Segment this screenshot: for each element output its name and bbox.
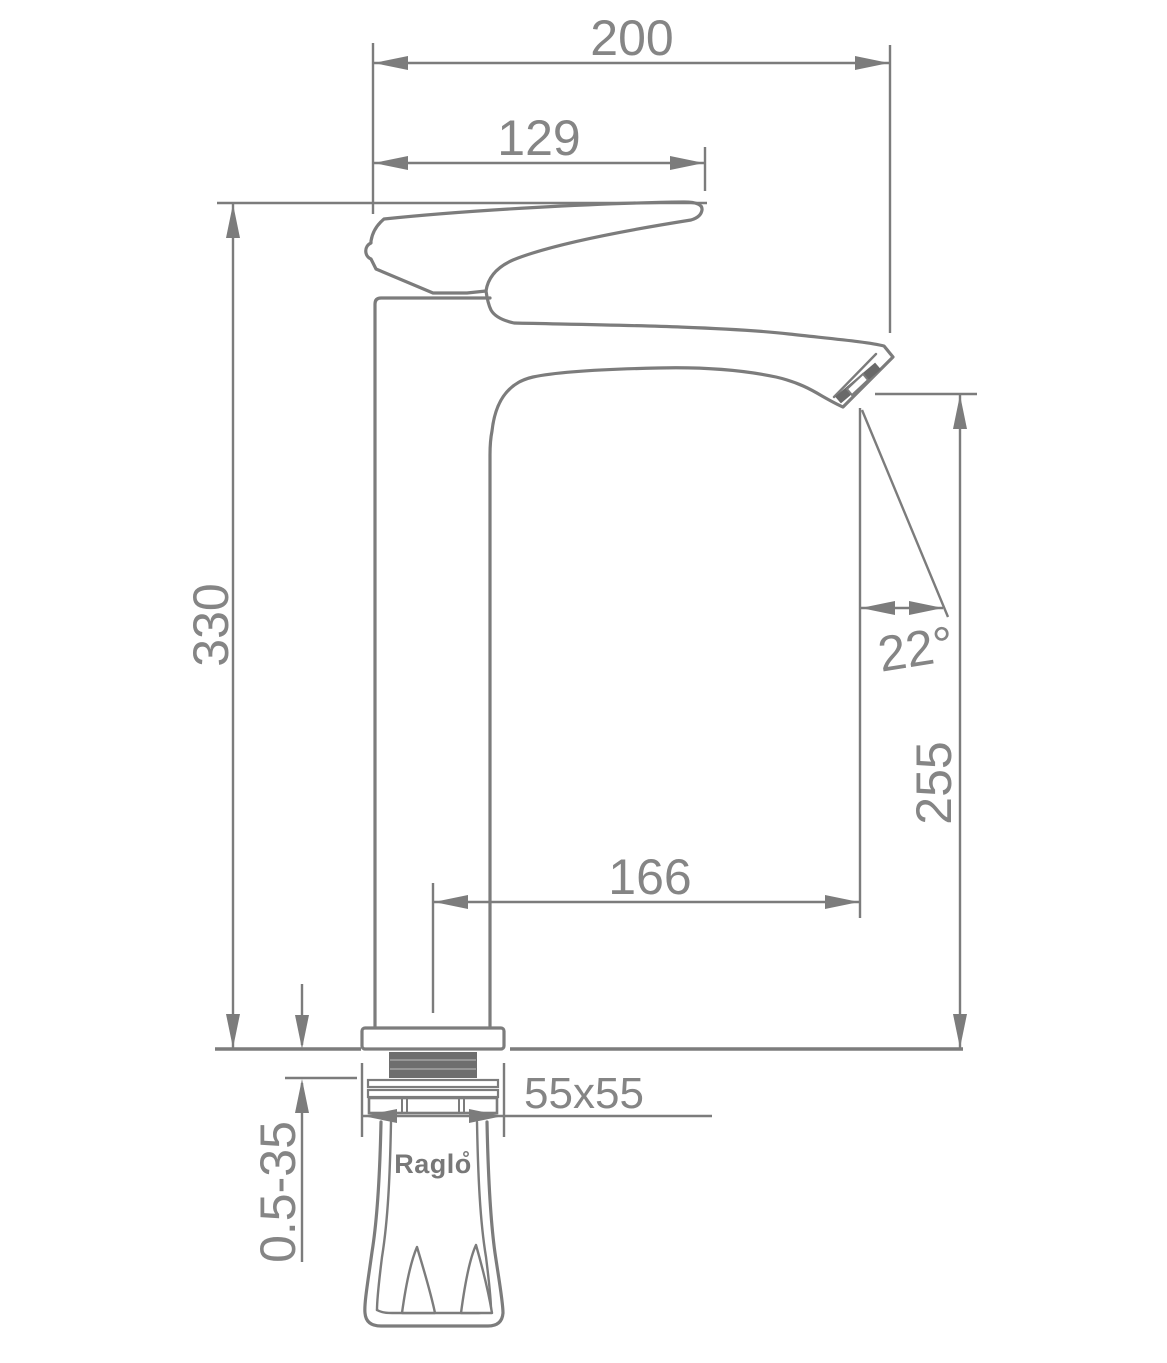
dim-label-255: 255: [906, 741, 962, 824]
mounting-nut: [369, 1098, 497, 1113]
arrowhead-down: [295, 1015, 309, 1049]
spout: [486, 291, 893, 1028]
handle-lever: [366, 202, 702, 293]
arrowhead-down: [953, 1014, 967, 1048]
mounting-flange: [362, 1028, 504, 1049]
supply-hose-left: [402, 1247, 435, 1313]
dim-label-200: 200: [590, 10, 673, 66]
dim-outlet-height-255: 255: [875, 394, 977, 1048]
arrowhead-right: [855, 56, 889, 70]
dim-label-clamp-range: 0.5-35: [250, 1121, 306, 1263]
arrowhead-left: [374, 156, 408, 170]
technical-drawing-page: Raglo 200 129 330 255: [0, 0, 1167, 1363]
threaded-shank: [389, 1052, 477, 1078]
faucet-assembly: Raglo: [362, 202, 893, 1326]
arrowhead-left: [861, 601, 895, 615]
supply-hose-right: [461, 1245, 492, 1313]
arrowhead-right: [825, 895, 859, 909]
arrowhead-left: [374, 56, 408, 70]
dim-label-129: 129: [497, 110, 580, 166]
arrowhead-up: [953, 395, 967, 429]
dim-spout-reach-166: 166: [433, 849, 859, 1013]
dim-spout-angle-22: 22°: [860, 408, 958, 918]
dim-handle-reach-129: 129: [374, 110, 705, 191]
arrowhead-right: [670, 156, 704, 170]
brand-logo: Raglo: [394, 1149, 472, 1179]
dim-label-55x55: 55x55: [524, 1069, 644, 1118]
arrowhead-down: [226, 1014, 240, 1048]
arrowhead-left: [434, 895, 468, 909]
dim-top-width-200: 200: [373, 10, 890, 333]
lock-washer-lower: [368, 1090, 498, 1097]
arrowhead-up: [226, 204, 240, 238]
dim-label-166: 166: [608, 849, 691, 905]
faucet-dimension-diagram: Raglo 200 129 330 255: [0, 0, 1167, 1363]
dim-overall-height-330: 330: [183, 203, 707, 1048]
lock-washer-upper: [368, 1080, 498, 1087]
dim-label-22deg: 22°: [874, 615, 957, 682]
arrowhead-right: [909, 601, 943, 615]
dim-label-330: 330: [183, 583, 239, 666]
dim-clamp-range: 0.5-35: [250, 984, 357, 1263]
